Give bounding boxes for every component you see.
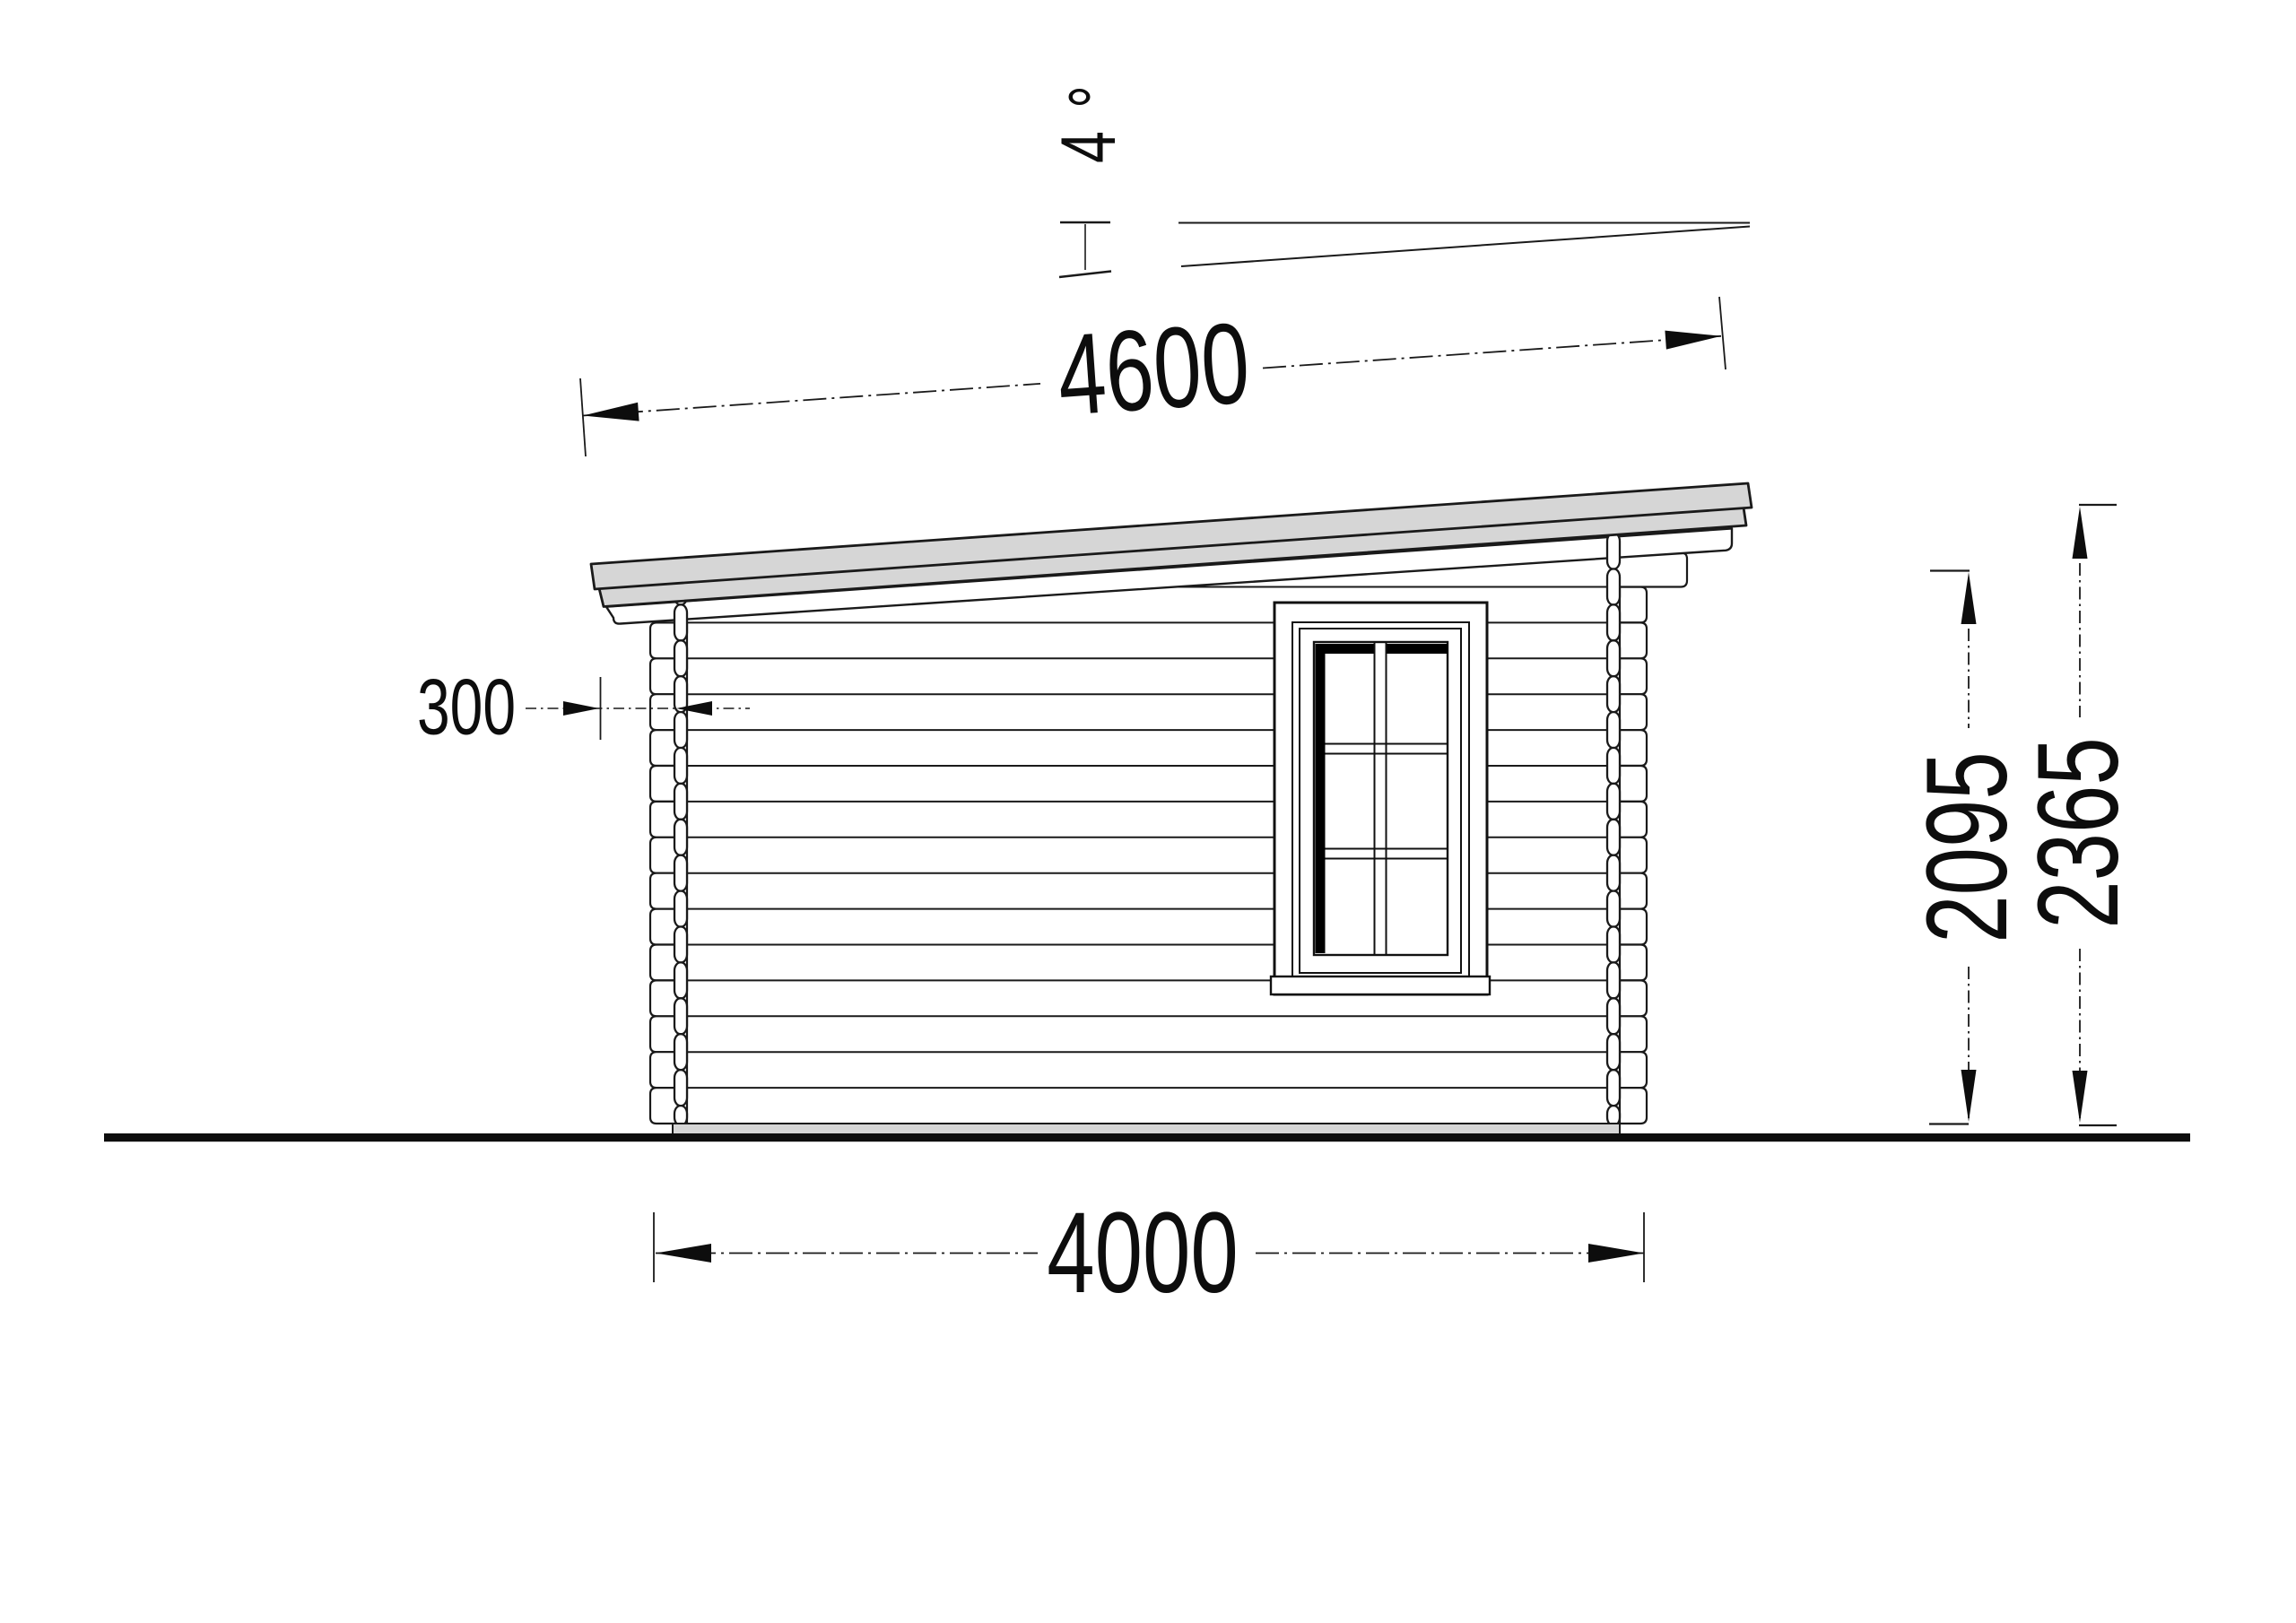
svg-text:300: 300 <box>417 664 516 751</box>
svg-text:2095: 2095 <box>1903 751 2031 943</box>
svg-text:4600: 4600 <box>1054 299 1254 439</box>
svg-text:4000: 4000 <box>1047 1189 1239 1317</box>
svg-text:4: 4 <box>1046 131 1132 163</box>
svg-text:°: ° <box>1054 85 1140 108</box>
svg-text:2365: 2365 <box>2014 737 2143 929</box>
